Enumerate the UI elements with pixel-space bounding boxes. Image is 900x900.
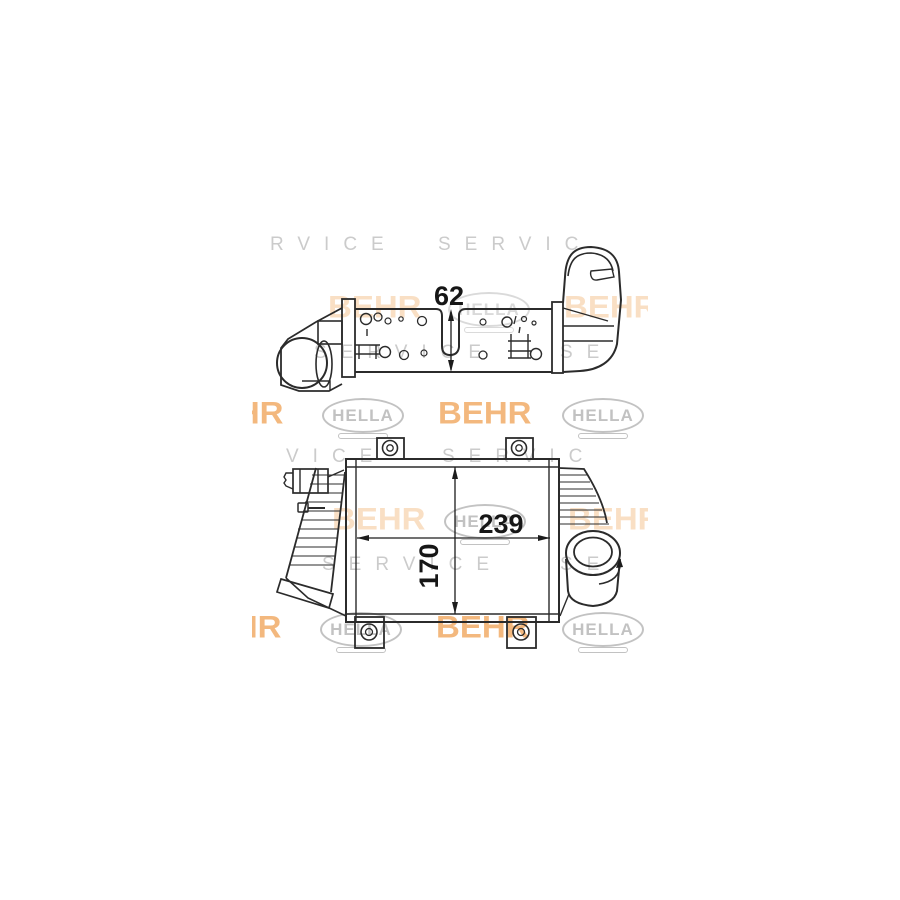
dim-width: 239: [357, 509, 550, 541]
dim-height: 170: [414, 467, 458, 614]
left-hole-group: [355, 313, 427, 360]
dim-height-label: 170: [414, 543, 444, 588]
front-view: 239 170: [277, 438, 623, 648]
hose-port-inner: [574, 538, 612, 567]
port-rim: [316, 341, 332, 387]
elbow-stripe: [591, 269, 614, 280]
dim-width-label: 239: [478, 509, 523, 539]
left-tank: [277, 468, 346, 616]
right-hole-group: [479, 316, 542, 360]
right-end-plate: [552, 302, 563, 373]
mounting-bracket-top-right: [506, 438, 533, 459]
elbow-hose-outline: [563, 247, 621, 372]
core-channels: [346, 459, 559, 622]
left-tab: [318, 321, 342, 344]
left-end-plate: [342, 299, 355, 377]
mounting-bracket-top-left: [377, 438, 404, 459]
core-outline: [346, 459, 559, 622]
dim-depth-label: 62: [434, 281, 464, 311]
tank-lines: [563, 308, 614, 341]
product-image-canvas: RVICESERVICSERVICESEVICESERVICSERVICESEB…: [0, 0, 900, 900]
foot-bracket: [277, 579, 333, 608]
top-view: 62: [277, 247, 621, 391]
right-tank: [559, 468, 623, 616]
technical-drawing: 62: [0, 0, 900, 900]
body-top-edge: [355, 309, 552, 355]
